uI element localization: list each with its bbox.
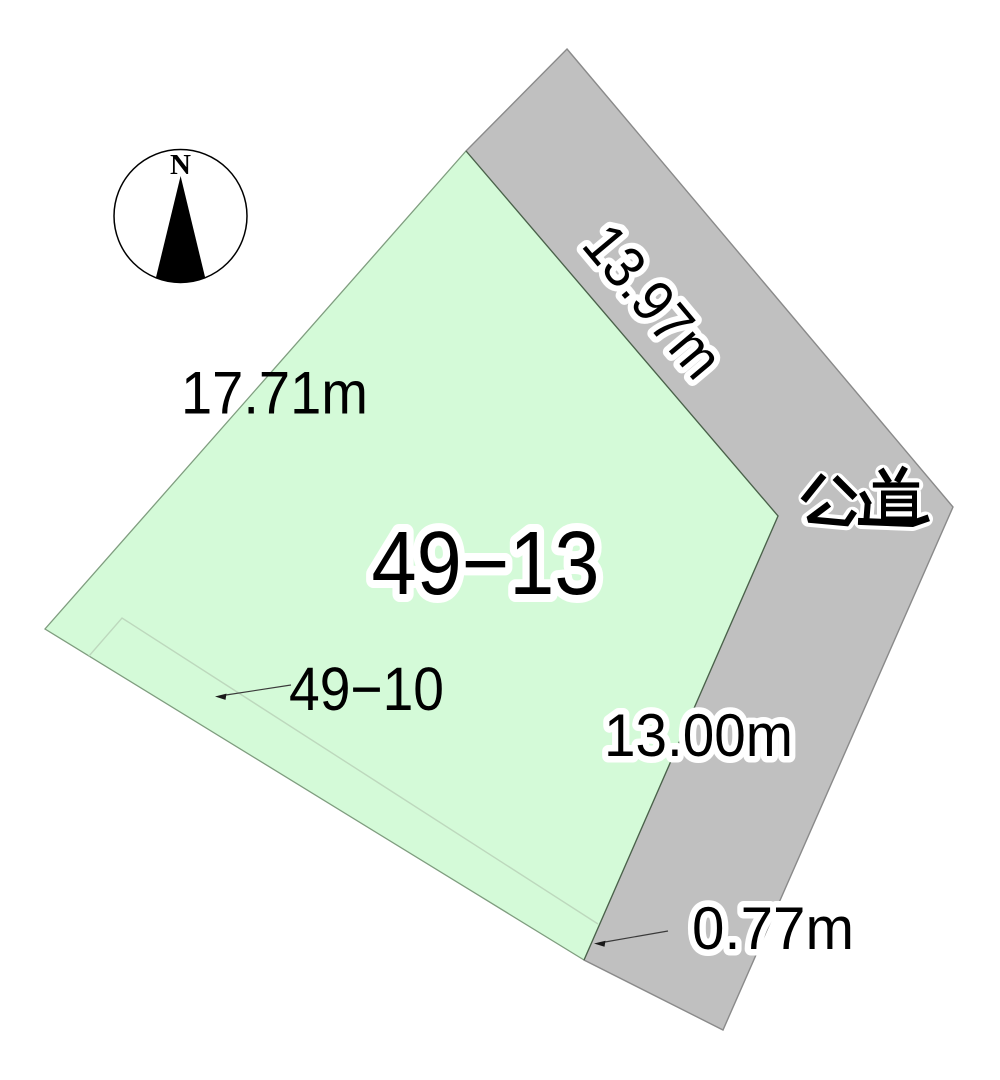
svg-text:0.77m: 0.77m: [692, 895, 854, 962]
svg-text:49−10: 49−10: [289, 655, 444, 723]
svg-text:17.71m: 17.71m: [181, 360, 368, 427]
svg-text:49−13: 49−13: [372, 514, 600, 614]
svg-text:13.00m: 13.00m: [604, 702, 793, 769]
svg-text:N: N: [170, 149, 191, 181]
